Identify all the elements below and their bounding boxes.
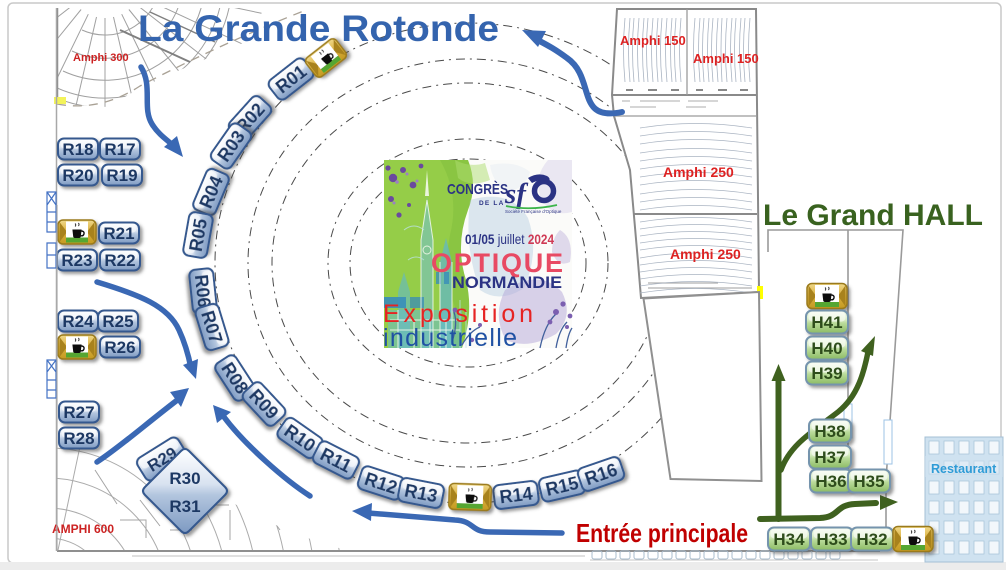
- svg-text:CONGRÈS: CONGRÈS: [447, 181, 508, 198]
- svg-text:Amphi 250: Amphi 250: [670, 246, 741, 262]
- svg-text:R21: R21: [103, 224, 134, 243]
- svg-text:R18: R18: [62, 140, 93, 159]
- svg-text:R22: R22: [104, 251, 135, 270]
- svg-text:Amphi 300: Amphi 300: [73, 52, 129, 64]
- svg-text:H38: H38: [814, 422, 845, 441]
- svg-text:R20: R20: [62, 166, 93, 185]
- svg-text:H37: H37: [814, 448, 845, 467]
- svg-text:H34: H34: [773, 530, 805, 549]
- svg-text:NORMANDIE: NORMANDIE: [452, 274, 562, 292]
- svg-text:01/05 juillet 2024: 01/05 juillet 2024: [465, 231, 554, 247]
- svg-text:R30: R30: [169, 469, 200, 488]
- svg-text:Amphi 250: Amphi 250: [663, 164, 734, 180]
- svg-text:Société Française d'Optique: Société Française d'Optique: [505, 209, 562, 214]
- svg-text:Le Grand HALL: Le Grand HALL: [763, 199, 983, 232]
- svg-text:R14: R14: [498, 484, 533, 508]
- svg-text:R06: R06: [191, 274, 214, 309]
- svg-text:R27: R27: [63, 403, 94, 422]
- svg-text:R28: R28: [63, 429, 94, 448]
- svg-text:Entrée principale: Entrée principale: [576, 518, 748, 548]
- svg-text:H32: H32: [856, 530, 887, 549]
- svg-text:Amphi 150: Amphi 150: [620, 33, 686, 48]
- svg-text:R24: R24: [62, 312, 94, 331]
- svg-text:industrielle: industrielle: [383, 324, 517, 352]
- svg-text:R26: R26: [104, 338, 135, 357]
- svg-text:H33: H33: [816, 530, 847, 549]
- svg-text:La Grande Rotonde: La Grande Rotonde: [138, 8, 499, 49]
- svg-text:AMPHI 600: AMPHI 600: [52, 522, 114, 536]
- svg-text:R17: R17: [104, 140, 135, 159]
- svg-text:R25: R25: [102, 312, 133, 331]
- svg-text:H39: H39: [811, 364, 842, 383]
- svg-text:DE LA: DE LA: [479, 200, 505, 207]
- svg-text:sf: sf: [504, 178, 529, 210]
- svg-text:R23: R23: [61, 251, 92, 270]
- svg-text:Amphi 150: Amphi 150: [693, 51, 759, 66]
- svg-text:Restaurant: Restaurant: [931, 462, 997, 476]
- svg-text:H36: H36: [815, 472, 846, 491]
- svg-text:H41: H41: [811, 313, 842, 332]
- svg-text:H35: H35: [853, 472, 884, 491]
- svg-text:R31: R31: [169, 497, 200, 516]
- svg-text:H40: H40: [811, 339, 842, 358]
- svg-text:R19: R19: [106, 166, 137, 185]
